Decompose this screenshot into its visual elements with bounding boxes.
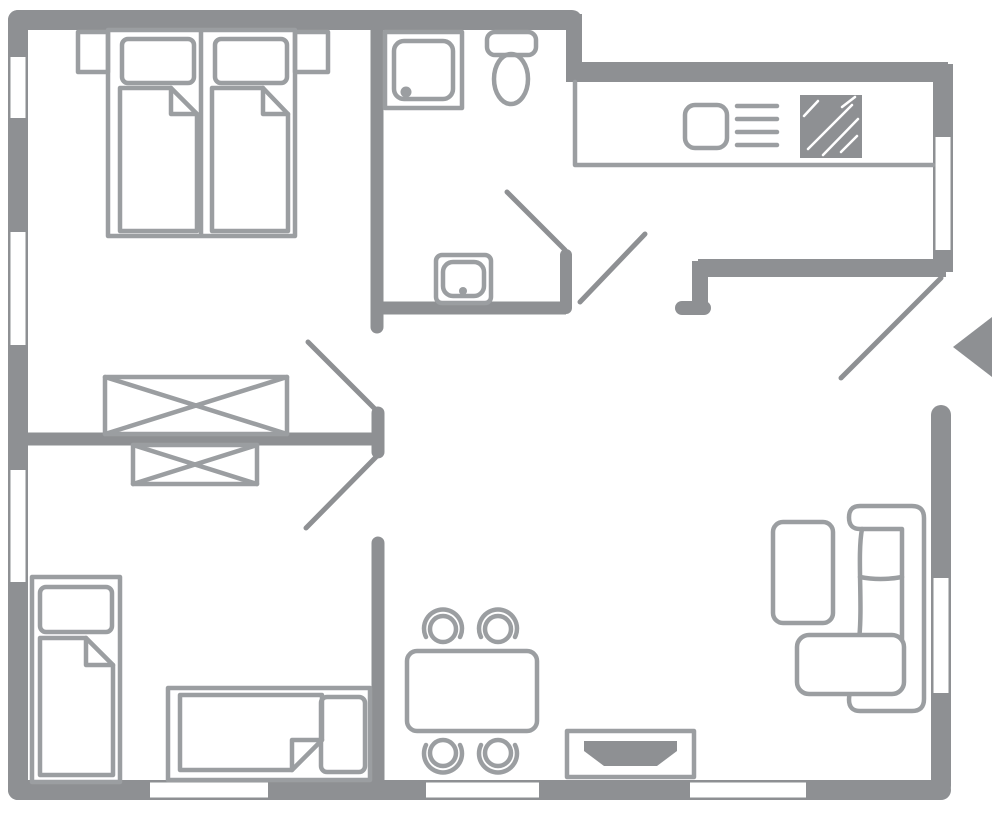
chair-4-seat xyxy=(485,740,511,766)
single-bed-horizontal-pillow xyxy=(321,697,365,772)
nightstand-left xyxy=(78,32,108,72)
window-bottom-2 xyxy=(426,783,539,798)
window-right-living xyxy=(934,578,949,693)
door-bathroom xyxy=(507,192,565,250)
kitchen-sink xyxy=(685,105,727,148)
floor-plan xyxy=(0,0,1000,817)
chair-4 xyxy=(479,740,517,772)
chair-1 xyxy=(424,610,462,642)
dining-area xyxy=(407,610,694,777)
living-area xyxy=(773,506,924,711)
cooktop-vent-lines xyxy=(737,106,777,145)
duvet-left xyxy=(120,88,197,231)
dining-table xyxy=(407,651,537,731)
door-entrance xyxy=(841,278,941,378)
duvet-right xyxy=(212,88,288,231)
washbasin-drain xyxy=(459,287,467,295)
window-left-2 xyxy=(11,232,26,345)
toilet-bowl xyxy=(494,54,528,104)
pillow-right xyxy=(215,39,287,83)
single-bed-vertical-pillow xyxy=(40,587,112,632)
nightstand-right xyxy=(295,32,328,72)
chair-2 xyxy=(479,610,517,642)
single-bed-vertical-frame xyxy=(32,577,120,782)
kitchen-counter xyxy=(575,82,933,165)
bedroom-bottom-left xyxy=(32,445,370,782)
bedroom-top-left xyxy=(78,30,328,434)
single-bed-horizontal-duvet xyxy=(180,695,322,770)
sofa-cushion-divider xyxy=(860,577,902,579)
window-left-1 xyxy=(11,57,26,118)
door-bedroom-top xyxy=(308,342,376,410)
bathroom xyxy=(385,32,536,303)
wardrobe-large-cross xyxy=(105,377,287,434)
door-bedroom-bottom xyxy=(306,457,376,528)
window-right-kitchen xyxy=(936,137,951,250)
stove-hatched-square xyxy=(800,95,862,158)
chair-2-seat xyxy=(485,616,511,642)
kitchen xyxy=(575,82,933,165)
chair-3-seat xyxy=(430,740,456,766)
window-left-3 xyxy=(11,470,26,582)
floor-plan-page xyxy=(0,0,1000,817)
chair-1-seat xyxy=(430,616,456,642)
window-bottom-1 xyxy=(150,783,268,798)
door-hall xyxy=(580,234,645,302)
shower-drain xyxy=(401,87,412,98)
wardrobe-small-cross xyxy=(133,445,257,484)
coffee-table xyxy=(773,522,833,623)
window-bottom-3 xyxy=(690,783,806,798)
single-bed-horizontal-frame xyxy=(168,688,370,780)
ottoman xyxy=(797,635,904,694)
pillow-left xyxy=(122,39,194,83)
doors xyxy=(306,192,941,528)
chair-3 xyxy=(424,740,462,772)
toilet-tank xyxy=(487,32,536,55)
entrance-arrow-icon xyxy=(953,317,992,377)
single-bed-vertical-duvet xyxy=(40,638,113,775)
